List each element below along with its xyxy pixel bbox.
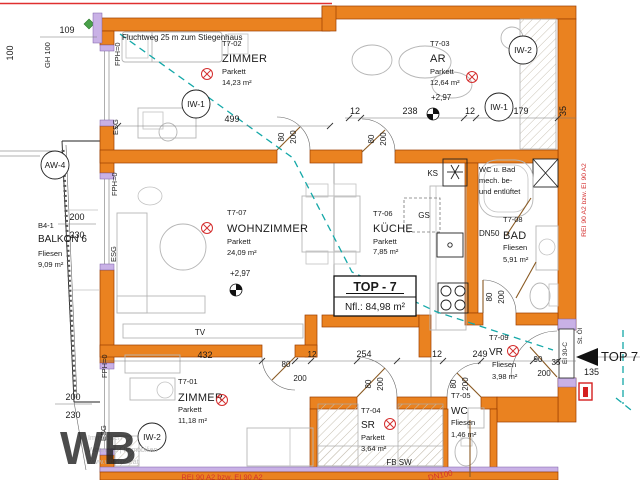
- fire-extinguisher-icon: [579, 383, 592, 400]
- dim: 432: [197, 350, 212, 360]
- room-id: T7-03: [430, 39, 450, 48]
- entrance-number: 135: [584, 367, 599, 377]
- fire-rating-right: REI 90 A2 bzw. EI 90 A2: [581, 163, 588, 237]
- dim: 200: [497, 290, 506, 304]
- marker-iw1: IW-1: [182, 90, 210, 118]
- dim: 35: [552, 358, 561, 367]
- dim: 100: [5, 45, 15, 60]
- vent-note: und entlüftet: [479, 187, 521, 196]
- dim: 109: [59, 25, 74, 35]
- dim: 200: [461, 377, 470, 391]
- room-floor: Parkett: [178, 405, 203, 414]
- room-name: WC: [451, 406, 468, 417]
- dim: 12: [432, 349, 442, 359]
- dim: 230: [65, 410, 80, 420]
- dim: 200: [376, 377, 385, 391]
- room-floor: Fliesen: [38, 249, 62, 258]
- room-area: 7,85 m²: [373, 247, 399, 256]
- dim: 80: [277, 132, 286, 141]
- wall: [465, 313, 483, 325]
- dim: 90: [534, 355, 543, 364]
- svg-text:IW-2: IW-2: [143, 432, 161, 442]
- room-area: 12,64 m²: [430, 78, 460, 87]
- st-oel-label: St. Öl: [576, 327, 584, 344]
- dim: 230: [69, 230, 84, 240]
- room-name: ZIMMER: [222, 53, 267, 65]
- pipe-label-dn50: DN50: [479, 229, 500, 238]
- wall: [481, 397, 497, 409]
- glazing-label-esg: ESG: [111, 119, 120, 135]
- glazing-label-fph: FPH=0: [110, 172, 119, 196]
- floor-plan-svg: Fluchtweg 25 m zum Stiegenhaus T7-02 ZIM…: [0, 0, 640, 480]
- dim: 200: [537, 369, 551, 378]
- room-area: 3,98 m²: [492, 372, 518, 381]
- marker-aw4: AW-4: [41, 151, 69, 179]
- room-id: T7-09: [489, 333, 509, 342]
- room-level: +2,97: [431, 93, 452, 102]
- dim: 12: [308, 350, 317, 359]
- fire-rating-bottom: REI 90 A2 bzw. EI 90 A2: [181, 473, 262, 480]
- room-level: +2,97: [230, 269, 251, 278]
- room-name: WOHNZIMMER: [227, 223, 308, 235]
- parapet-label: GH 100: [43, 42, 52, 68]
- dim: 80: [367, 134, 376, 143]
- room-floor: Fliesen: [492, 360, 516, 369]
- room-area: 11,18 m²: [178, 416, 208, 425]
- fridge-label: KS: [427, 169, 438, 178]
- dim: 12: [350, 106, 360, 116]
- dim: 12: [465, 106, 475, 116]
- wall: [100, 345, 262, 357]
- wall: [322, 315, 419, 327]
- room-area: 3,64 m²: [361, 444, 387, 453]
- room-id: B4-1: [38, 221, 54, 230]
- dim: 254: [356, 349, 371, 359]
- dim: 200: [293, 374, 307, 383]
- room-floor: Parkett: [430, 67, 455, 76]
- svg-text:IW-1: IW-1: [187, 99, 205, 109]
- marker-iw1: IW-1: [485, 93, 513, 121]
- dishwasher-label: GS: [418, 211, 430, 220]
- room-id: T7-02: [222, 39, 242, 48]
- door-class-label: EI 30-C: [562, 342, 569, 364]
- room-area: 9,09 m²: [38, 260, 64, 269]
- dim: 200: [379, 132, 388, 146]
- dim: 200: [289, 130, 298, 144]
- svg-text:IW-1: IW-1: [490, 102, 508, 112]
- room-id: T7-08: [503, 215, 523, 224]
- unit-info-box: TOP - 7 Nfl.: 84,98 m²: [334, 276, 416, 316]
- room-id: T7-01: [178, 377, 198, 386]
- unit-net-area: Nfl.: 84,98 m²: [345, 302, 406, 313]
- watermark-logo: WB: [60, 422, 137, 474]
- window: [100, 51, 114, 120]
- vent-note: mech. be-: [479, 176, 513, 185]
- marker-iw2: IW-2: [509, 36, 537, 64]
- room-floor: Parkett: [361, 433, 386, 442]
- dim: 200: [65, 392, 80, 402]
- vent-note: WC u. Bad: [479, 165, 515, 174]
- unit-title: TOP - 7: [353, 280, 396, 294]
- wall: [310, 150, 362, 163]
- room-name: VR: [489, 347, 503, 358]
- room-area: 14,23 m²: [222, 78, 252, 87]
- wall: [516, 313, 558, 325]
- dim: 249: [472, 349, 487, 359]
- svg-text:AW-4: AW-4: [45, 160, 66, 170]
- wall: [419, 315, 431, 357]
- entrance-label: TOP 7: [601, 349, 638, 364]
- wall: [100, 18, 330, 31]
- room-floor: Parkett: [227, 237, 252, 246]
- glazing-label-fph: FPH=0: [113, 42, 122, 66]
- room-floor: Fliesen: [503, 243, 527, 252]
- wall: [322, 6, 576, 19]
- room-area: 5,91 m²: [503, 255, 529, 264]
- wall: [558, 19, 576, 330]
- fb-sw-label: FB SW: [386, 458, 412, 467]
- room-id: T7-06: [373, 209, 393, 218]
- window-band: [100, 467, 558, 472]
- room-name: BAD: [503, 230, 527, 242]
- wall: [310, 409, 317, 468]
- dim: 200: [69, 212, 84, 222]
- room-name: AR: [430, 53, 446, 65]
- room-id: T7-05: [451, 391, 471, 400]
- room-name: KÜCHE: [373, 223, 413, 235]
- dim: 238: [402, 106, 417, 116]
- room-name: SR: [361, 420, 375, 431]
- room-id: T7-04: [361, 406, 381, 415]
- wall: [497, 397, 558, 422]
- dim: 80: [485, 292, 494, 301]
- shaft-icon: [533, 159, 558, 187]
- dim: 35: [558, 106, 568, 116]
- room-floor: Fliesen: [451, 418, 475, 427]
- dim: 179: [513, 106, 528, 116]
- room-area: 1,46 m²: [451, 430, 477, 439]
- wall: [322, 6, 336, 31]
- room-floor: Parkett: [373, 237, 398, 246]
- dim: 80: [364, 379, 373, 388]
- tv-label: TV: [195, 328, 206, 337]
- room-floor: Parkett: [222, 67, 247, 76]
- level-marker-icon: [427, 108, 439, 120]
- level-marker-icon: [230, 284, 242, 296]
- floor-plan: Fluchtweg 25 m zum Stiegenhaus T7-02 ZIM…: [0, 0, 640, 480]
- wall: [100, 472, 558, 480]
- svg-text:IW-2: IW-2: [514, 45, 532, 55]
- wall: [443, 409, 448, 468]
- wall: [100, 150, 277, 163]
- room-area: 24,09 m²: [227, 248, 257, 257]
- dim: 499: [224, 114, 239, 124]
- dim: 80: [449, 379, 458, 388]
- wall: [490, 409, 497, 468]
- room-id: T7-07: [227, 208, 247, 217]
- glazing-label-esg: ESG: [109, 246, 118, 262]
- dim: 80: [282, 360, 291, 369]
- glazing-label-fph: FPH=0: [100, 354, 109, 378]
